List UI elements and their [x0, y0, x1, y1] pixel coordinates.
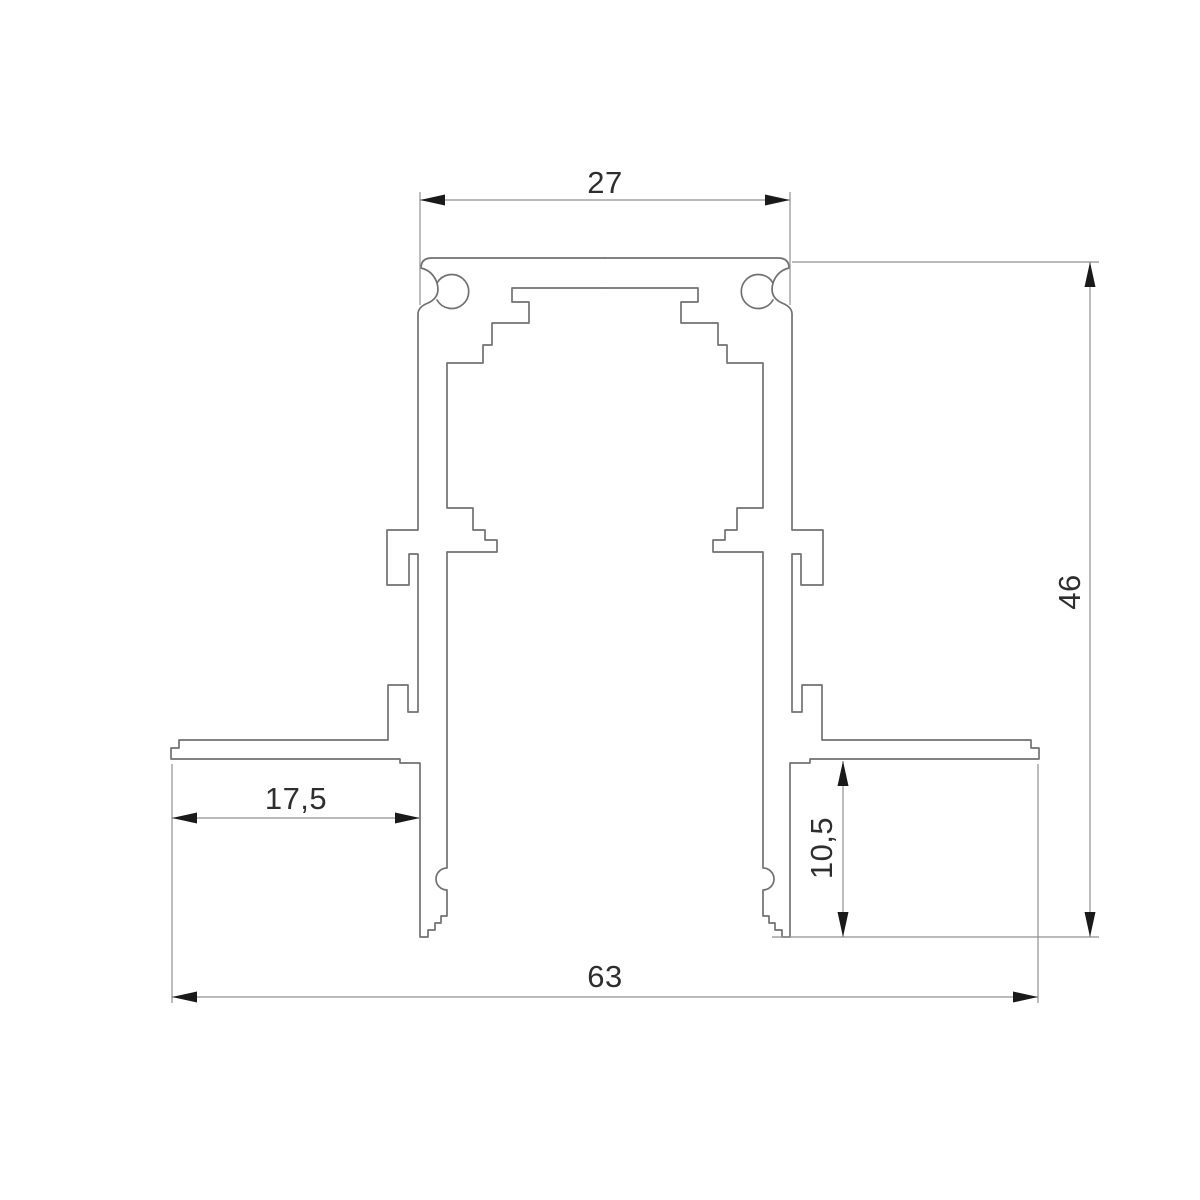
dimension-value-left-flange-width: 17,5: [265, 781, 327, 816]
screw-boss-cavity-right: [741, 275, 773, 309]
arrowhead-bottom: [1085, 912, 1096, 937]
arrowhead-left: [420, 195, 445, 206]
arrowhead-bottom: [838, 912, 849, 937]
arrowhead-right: [1013, 992, 1038, 1003]
arrowhead-right: [765, 195, 790, 206]
screw-boss-cavity-left: [437, 275, 469, 309]
arrowhead-left: [172, 813, 197, 824]
track-profile-drawing: 27 46 17,5 10,5: [0, 0, 1200, 1200]
dimension-value-overall-width: 63: [587, 959, 622, 994]
dimension-value-right-flange-height: 10,5: [804, 817, 839, 879]
arrowhead-left: [172, 992, 197, 1003]
dimension-top-width: 27: [420, 165, 790, 305]
arrowhead-top: [838, 761, 849, 786]
profile-outline-left-half: [171, 258, 605, 937]
arrowhead-top: [1085, 262, 1096, 287]
dimension-value-top-width: 27: [587, 165, 622, 200]
profile-outline: [171, 258, 1039, 937]
arrowhead-right: [395, 813, 420, 824]
dimension-left-flange-width: 17,5: [172, 764, 420, 1003]
dimension-value-overall-height: 46: [1052, 574, 1087, 609]
profile-cross-section-svg: 27 46 17,5 10,5: [0, 0, 1200, 1200]
dimension-right-flange-height: 10,5: [804, 761, 849, 937]
